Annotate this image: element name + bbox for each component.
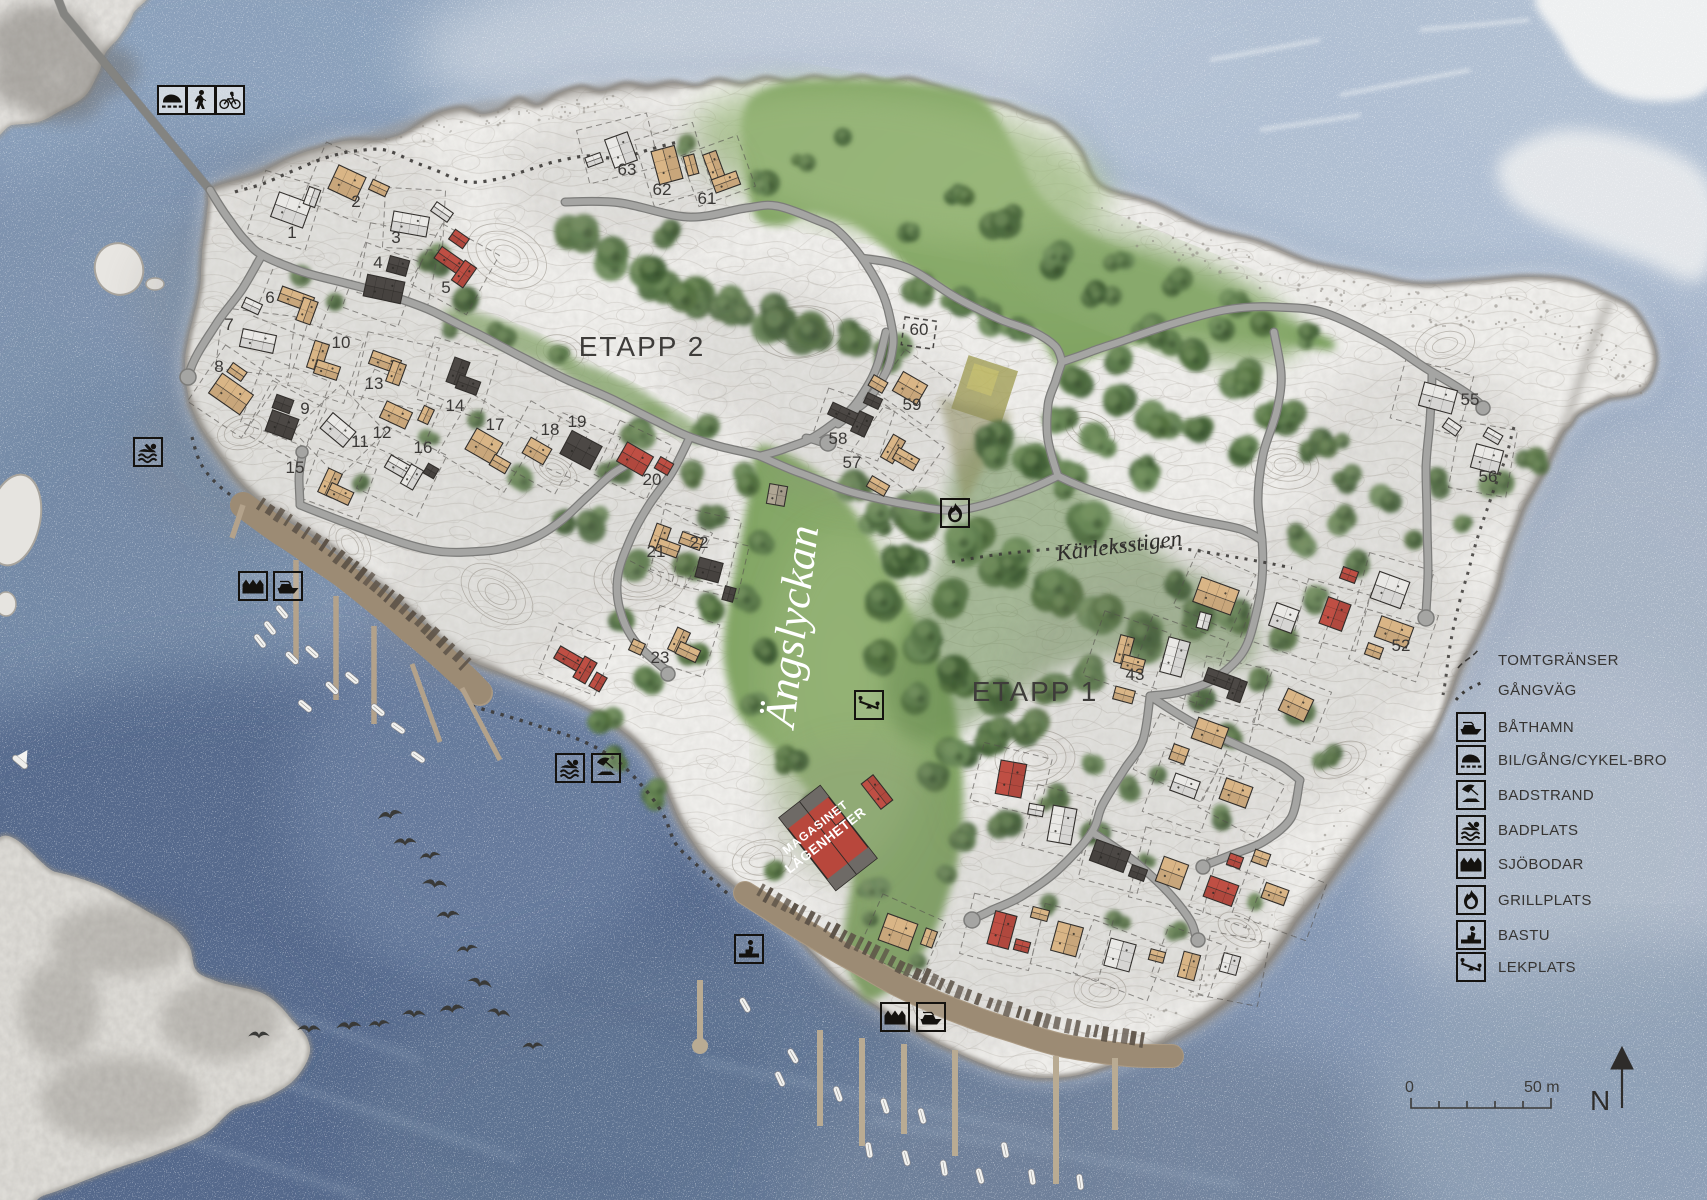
svg-text:7: 7 — [224, 315, 233, 334]
svg-text:16: 16 — [414, 438, 433, 457]
svg-text:8: 8 — [214, 357, 223, 376]
svg-text:15: 15 — [286, 458, 305, 477]
svg-text:BADSTRAND: BADSTRAND — [1498, 787, 1594, 804]
svg-text:LEKPLATS: LEKPLATS — [1498, 959, 1576, 976]
svg-text:19: 19 — [568, 412, 587, 431]
svg-text:3: 3 — [391, 228, 400, 247]
svg-text:ETAPP 1: ETAPP 1 — [972, 676, 1099, 707]
svg-text:58: 58 — [829, 429, 848, 448]
svg-text:57: 57 — [843, 453, 862, 472]
svg-text:2: 2 — [351, 192, 360, 211]
svg-text:11: 11 — [351, 432, 369, 451]
svg-text:59: 59 — [903, 395, 922, 414]
svg-text:SJÖBODAR: SJÖBODAR — [1498, 855, 1584, 873]
svg-text:21: 21 — [647, 542, 666, 561]
svg-text:23: 23 — [651, 648, 670, 667]
svg-text:18: 18 — [541, 420, 560, 439]
svg-text:43: 43 — [1126, 665, 1145, 684]
svg-text:GÅNGVÄG: GÅNGVÄG — [1498, 682, 1577, 699]
svg-text:BÅTHAMN: BÅTHAMN — [1498, 719, 1574, 736]
svg-text:1: 1 — [287, 223, 296, 242]
svg-text:TOMTGRÄNSER: TOMTGRÄNSER — [1498, 652, 1619, 669]
svg-text:4: 4 — [373, 253, 382, 272]
svg-text:20: 20 — [643, 470, 662, 489]
svg-text:14: 14 — [446, 396, 465, 415]
svg-text:5: 5 — [441, 278, 450, 297]
svg-text:17: 17 — [486, 415, 505, 434]
svg-text:BASTU: BASTU — [1498, 927, 1550, 944]
svg-text:BADPLATS: BADPLATS — [1498, 822, 1578, 839]
svg-text:10: 10 — [332, 333, 351, 352]
svg-text:62: 62 — [653, 180, 672, 199]
svg-text:12: 12 — [373, 423, 392, 442]
svg-text:9: 9 — [300, 399, 309, 418]
svg-text:ETAPP 2: ETAPP 2 — [579, 331, 706, 362]
svg-text:50 m: 50 m — [1524, 1079, 1560, 1096]
svg-text:61: 61 — [698, 189, 717, 208]
svg-text:N: N — [1590, 1085, 1610, 1116]
svg-text:63: 63 — [618, 160, 637, 179]
svg-text:GRILLPLATS: GRILLPLATS — [1498, 892, 1592, 909]
svg-text:BIL/GÅNG/CYKEL-BRO: BIL/GÅNG/CYKEL-BRO — [1498, 752, 1667, 769]
svg-text:22: 22 — [690, 533, 709, 552]
svg-text:60: 60 — [910, 320, 929, 339]
svg-text:55: 55 — [1461, 390, 1480, 409]
svg-text:52: 52 — [1392, 636, 1411, 655]
svg-text:0: 0 — [1405, 1079, 1414, 1096]
svg-text:13: 13 — [365, 374, 384, 393]
svg-text:6: 6 — [265, 288, 274, 307]
svg-text:56: 56 — [1479, 467, 1498, 486]
